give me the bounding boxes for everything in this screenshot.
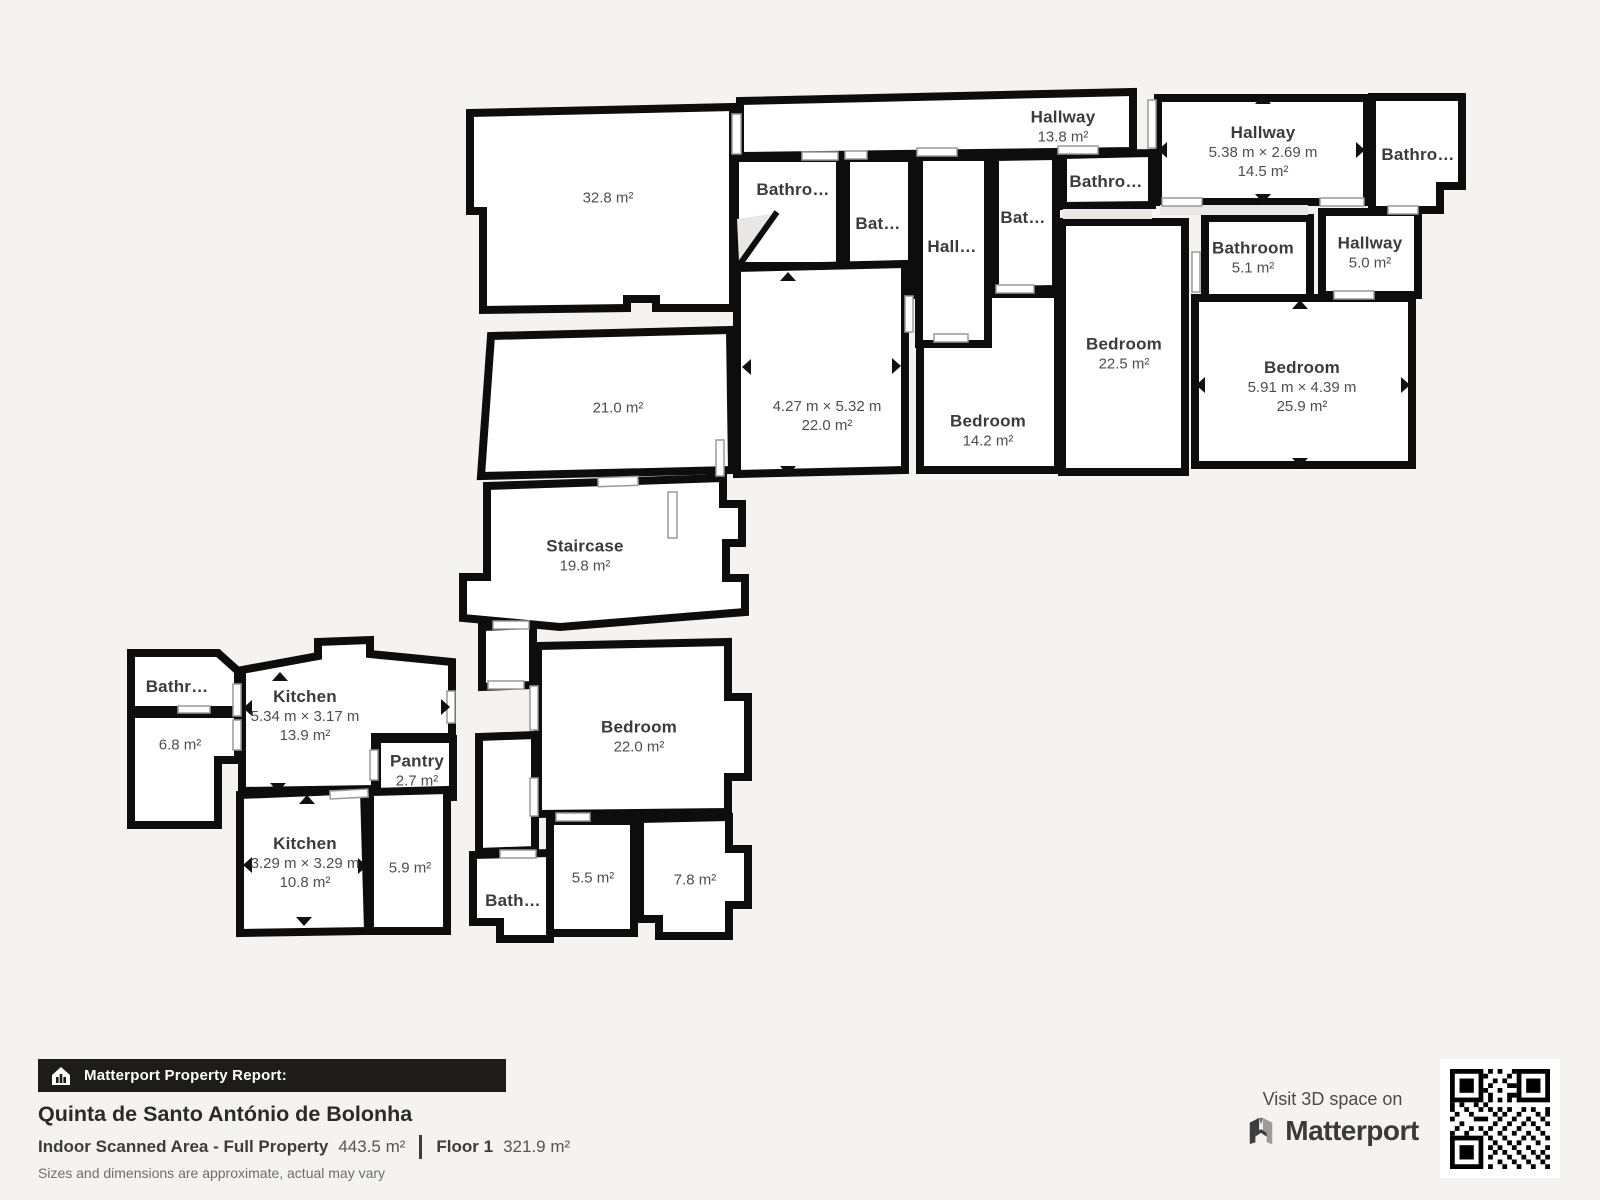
room-label-bath-e: Bathro… [1069, 172, 1142, 192]
room-area: 5.1 m² [1212, 259, 1294, 278]
room-label-68: 6.8 m² [159, 736, 202, 755]
visit-3d-space-link[interactable]: Visit 3D space on Matterport [1235, 1088, 1430, 1147]
room-label-staircase: Staircase 19.8 m² [546, 537, 623, 576]
room-name: Hallway [1031, 108, 1096, 128]
room-name: Bedroom [601, 718, 677, 738]
room-label-kitchen-139: Kitchen 5.34 m × 3.17 m 13.9 m² [251, 687, 360, 745]
room-label-pantry: Pantry 2.7 m² [390, 752, 444, 791]
room-name: Bathr… [146, 677, 209, 697]
room-name: Bath… [485, 891, 541, 911]
property-title: Quinta de Santo António de Bolonha [38, 1102, 412, 1127]
room-area: 5.0 m² [1338, 254, 1403, 273]
room-68-shape [131, 714, 238, 825]
room-area: 22.0 m² [601, 738, 677, 757]
room-label-bath-b: Bat… [855, 214, 900, 234]
room-label-bedroom-142: Bedroom 14.2 m² [950, 412, 1026, 451]
room-label-55: 5.5 m² [572, 869, 615, 888]
room-label-220a: 4.27 m × 5.32 m 22.0 m² [773, 397, 882, 435]
room-label-bath-f: Bath… [485, 891, 541, 911]
room-area: 5.9 m² [389, 859, 432, 878]
room-label-bath-topright: Bathro… [1381, 145, 1454, 165]
landing-b-shape [479, 735, 535, 852]
matterport-logo-icon [1246, 1116, 1276, 1146]
room-328-shape [470, 107, 733, 310]
disclaimer-text: Sizes and dimensions are approximate, ac… [38, 1165, 385, 1181]
qr-code-pattern [1450, 1069, 1550, 1169]
visit-text: Visit 3D space on [1235, 1088, 1430, 1110]
room-label-bedroom-220: Bedroom 22.0 m² [601, 718, 677, 757]
room-area: 7.8 m² [674, 871, 717, 890]
walls [131, 92, 1462, 939]
scanned-area-label: Indoor Scanned Area - Full Property [38, 1137, 328, 1157]
room-label-bath-a: Bathro… [756, 180, 829, 200]
report-header-bar: Matterport Property Report: [38, 1059, 506, 1092]
room-dims: 5.91 m × 4.39 m [1248, 378, 1357, 397]
area-summary: Indoor Scanned Area - Full Property 443.… [38, 1135, 570, 1159]
room-name: Bathro… [1069, 172, 1142, 192]
room-name: Hallway [1209, 123, 1318, 143]
room-area: 32.8 m² [583, 189, 634, 208]
room-label-hall-right: Hallway 5.38 m × 2.69 m 14.5 m² [1209, 123, 1318, 181]
room-dims: 5.34 m × 3.17 m [251, 707, 360, 726]
scanned-area-value: 443.5 m² [338, 1137, 405, 1157]
room-area: 22.5 m² [1086, 355, 1162, 374]
room-label-59: 5.9 m² [389, 859, 432, 878]
room-area: 5.5 m² [572, 869, 615, 888]
room-label-hallway-50: Hallway 5.0 m² [1338, 234, 1403, 273]
room-area: 22.0 m² [773, 416, 882, 435]
floor-value: 321.9 m² [503, 1137, 570, 1157]
floor-plan-svg [0, 0, 1600, 1010]
room-name: Bathro… [756, 180, 829, 200]
report-label: Matterport Property Report: [84, 1067, 287, 1084]
room-label-hall-c: Hall… [927, 237, 976, 257]
matterport-floorplan-report: { "page": { "background": "#f4f3f1", "wa… [0, 0, 1600, 1200]
room-area: 13.9 m² [251, 726, 360, 745]
qr-code[interactable] [1440, 1059, 1560, 1178]
room-name: Kitchen [251, 687, 360, 707]
room-name: Bedroom [1248, 358, 1357, 378]
room-dims: 4.27 m × 5.32 m [773, 397, 882, 416]
landing-a-shape [482, 625, 533, 687]
room-name: Bathroom [1212, 239, 1294, 259]
room-name: Staircase [546, 537, 623, 557]
floor-label: Floor 1 [436, 1137, 493, 1157]
room-area: 25.9 m² [1248, 397, 1357, 416]
room-label-bath-d: Bat… [1000, 208, 1045, 228]
room-name: Bat… [855, 214, 900, 234]
room-label-bath-left: Bathr… [146, 677, 209, 697]
room-area: 21.0 m² [593, 399, 644, 418]
room-name: Pantry [390, 752, 444, 772]
room-area: 19.8 m² [546, 557, 623, 576]
room-name: Hall… [927, 237, 976, 257]
room-name: Bathro… [1381, 145, 1454, 165]
room-area: 10.8 m² [251, 873, 360, 892]
room-area: 14.2 m² [950, 432, 1026, 451]
property-report-house-icon [51, 1066, 71, 1086]
room-area: 6.8 m² [159, 736, 202, 755]
room-name: Bat… [1000, 208, 1045, 228]
room-name: Bedroom [950, 412, 1026, 432]
room-220a-shape [737, 264, 905, 474]
room-label-bedroom-259: Bedroom 5.91 m × 4.39 m 25.9 m² [1248, 358, 1357, 416]
room-name: Bedroom [1086, 335, 1162, 355]
divider [419, 1135, 422, 1159]
room-label-hall-top: Hallway 13.8 m² [1031, 108, 1096, 147]
room-label-210: 21.0 m² [593, 399, 644, 418]
room-label-bathroom-51: Bathroom 5.1 m² [1212, 239, 1294, 278]
room-label-kitchen-108: Kitchen 3.29 m × 3.29 m 10.8 m² [251, 834, 360, 892]
room-label-78: 7.8 m² [674, 871, 717, 890]
room-name: Kitchen [251, 834, 360, 854]
room-dims: 3.29 m × 3.29 m [251, 854, 360, 873]
room-area: 2.7 m² [390, 772, 444, 791]
room-area: 14.5 m² [1209, 162, 1318, 181]
room-label-bedroom-225: Bedroom 22.5 m² [1086, 335, 1162, 374]
room-area: 13.8 m² [1031, 128, 1096, 147]
room-name: Hallway [1338, 234, 1403, 254]
room-label-328: 32.8 m² [583, 189, 634, 208]
matterport-wordmark: Matterport [1285, 1115, 1418, 1147]
room-dims: 5.38 m × 2.69 m [1209, 143, 1318, 162]
